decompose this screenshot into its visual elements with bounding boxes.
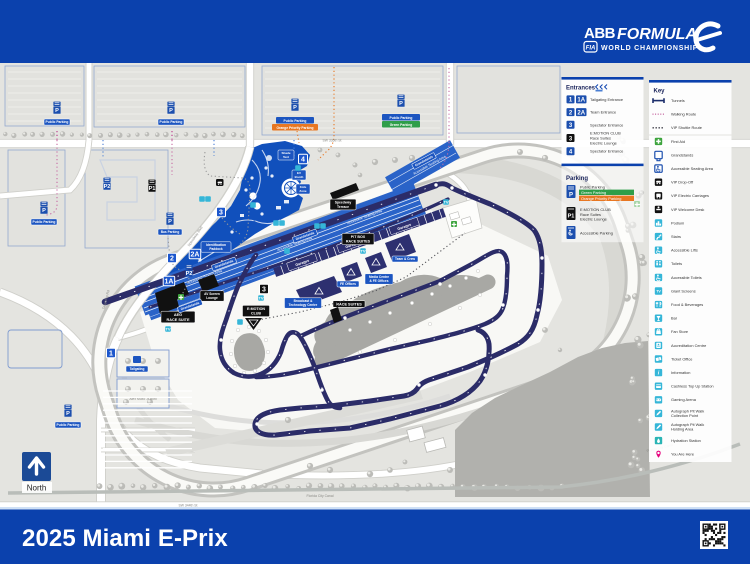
- svg-text:1: 1: [109, 351, 113, 358]
- svg-text:1A: 1A: [577, 98, 585, 104]
- svg-text:Zone: Zone: [299, 189, 306, 193]
- svg-text:P1: P1: [149, 186, 156, 192]
- svg-text:FIA: FIA: [586, 46, 596, 52]
- svg-text:P: P: [293, 105, 297, 111]
- svg-text:P2: P2: [186, 271, 193, 277]
- svg-text:Podium: Podium: [671, 220, 684, 225]
- svg-text:You Are Here: You Are Here: [671, 452, 694, 457]
- svg-text:Media Centre: Media Centre: [369, 275, 389, 279]
- svg-text:Public Parking: Public Parking: [160, 120, 183, 124]
- svg-text:VIP Shuttle Route: VIP Shuttle Route: [671, 125, 702, 130]
- svg-text:SW 336th St: SW 336th St: [322, 139, 341, 143]
- svg-text:WORLD CHAMPIONSHIP: WORLD CHAMPIONSHIP: [601, 45, 698, 52]
- svg-text:2: 2: [170, 256, 174, 263]
- svg-text:Team & Crew: Team & Crew: [395, 257, 415, 261]
- svg-text:P: P: [42, 208, 46, 214]
- svg-text:Broadcast &: Broadcast &: [294, 299, 313, 303]
- svg-text:Parking: Parking: [566, 176, 588, 182]
- svg-text:Lounge: Lounge: [206, 296, 218, 300]
- svg-text:Cashless Top Up Station: Cashless Top Up Station: [671, 384, 714, 389]
- svg-text:Information: Information: [671, 370, 690, 375]
- svg-text:TV: TV: [360, 249, 365, 254]
- svg-text:Green Parking: Green Parking: [390, 123, 413, 127]
- svg-text:ABB: ABB: [584, 25, 616, 42]
- svg-text:E:MOTION: E:MOTION: [247, 307, 265, 311]
- svg-text:Food & Beverages: Food & Beverages: [671, 302, 703, 307]
- svg-text:Public Parking: Public Parking: [580, 184, 605, 189]
- svg-text:RACE SUITES: RACE SUITES: [336, 302, 362, 306]
- svg-text:Accessible Lifts: Accessible Lifts: [671, 248, 698, 253]
- svg-text:FE Offices: FE Offices: [340, 282, 356, 286]
- svg-text:RACE SUITE: RACE SUITE: [167, 318, 190, 322]
- svg-text:Tailgating Entrance: Tailgating Entrance: [590, 97, 623, 102]
- svg-text:Accessible Seating Area: Accessible Seating Area: [671, 166, 714, 171]
- svg-text:AEG: AEG: [174, 313, 182, 317]
- svg-text:Electric Lounge: Electric Lounge: [580, 217, 607, 222]
- svg-text:Identification: Identification: [206, 243, 226, 247]
- svg-text:& FE Offices: & FE Offices: [370, 279, 389, 283]
- svg-text:Walking Route: Walking Route: [671, 112, 696, 117]
- svg-text:Paddock: Paddock: [209, 247, 223, 251]
- svg-text:P1: P1: [568, 214, 575, 220]
- svg-text:PIT BOX: PIT BOX: [351, 235, 366, 239]
- svg-text:Gaming Arena: Gaming Arena: [671, 397, 697, 402]
- svg-text:Collection Point: Collection Point: [671, 413, 699, 418]
- svg-text:Stairs: Stairs: [671, 234, 681, 239]
- svg-text:2025 Miami E-Prix: 2025 Miami E-Prix: [22, 525, 228, 552]
- svg-text:P: P: [569, 193, 573, 199]
- svg-text:Technology Centre: Technology Centre: [289, 303, 318, 307]
- svg-text:Tunnels: Tunnels: [671, 98, 685, 103]
- svg-text:Accreditation Centre: Accreditation Centre: [671, 343, 706, 348]
- svg-text:TV: TV: [258, 296, 263, 301]
- svg-text:VIP Electric Carriages: VIP Electric Carriages: [671, 193, 709, 198]
- svg-text:Grandstands: Grandstands: [671, 152, 693, 157]
- svg-text:VIP Welcome Desk: VIP Welcome Desk: [671, 207, 704, 212]
- svg-text:Public Parking: Public Parking: [33, 220, 56, 224]
- svg-text:Public Parking: Public Parking: [57, 423, 80, 427]
- svg-text:TV: TV: [656, 289, 661, 293]
- svg-text:Spectator Entrance: Spectator Entrance: [590, 149, 623, 154]
- svg-text:VIP Drop-Off: VIP Drop-Off: [671, 180, 694, 185]
- svg-text:Team Entrance: Team Entrance: [590, 110, 616, 115]
- svg-text:Tent: Tent: [283, 155, 289, 159]
- svg-text:Spectator Entrance: Spectator Entrance: [590, 122, 623, 127]
- svg-text:Giant Screens: Giant Screens: [671, 288, 696, 293]
- svg-text:P: P: [55, 108, 59, 114]
- svg-text:Public Parking: Public Parking: [284, 119, 307, 123]
- svg-text:3: 3: [219, 210, 223, 217]
- svg-text:Electric Lounge: Electric Lounge: [590, 140, 617, 145]
- svg-text:TV: TV: [443, 200, 448, 205]
- svg-text:Speedway: Speedway: [335, 200, 352, 204]
- svg-text:Public Parking: Public Parking: [390, 116, 413, 120]
- svg-text:Accessible Toilets: Accessible Toilets: [671, 275, 702, 280]
- svg-text:P: P: [66, 411, 70, 417]
- svg-text:2A: 2A: [191, 252, 200, 259]
- svg-text:P2: P2: [104, 184, 111, 190]
- svg-text:FORMULA: FORMULA: [617, 26, 697, 43]
- svg-text:Ticket Office: Ticket Office: [671, 356, 692, 361]
- svg-text:TV: TV: [165, 327, 170, 332]
- svg-text:3: 3: [262, 287, 266, 294]
- svg-text:Key: Key: [654, 89, 666, 95]
- svg-text:P: P: [168, 219, 172, 225]
- svg-text:AV Screen: AV Screen: [204, 292, 220, 296]
- svg-text:CLUB: CLUB: [251, 312, 261, 316]
- svg-text:SW 344th St: SW 344th St: [178, 504, 197, 508]
- svg-text:Orange Priority Parking: Orange Priority Parking: [276, 126, 313, 130]
- svg-text:Entrances: Entrances: [566, 86, 596, 92]
- svg-text:RACE SUITES: RACE SUITES: [346, 240, 371, 244]
- svg-text:Bar: Bar: [671, 316, 678, 321]
- svg-text:Booth: Booth: [295, 175, 304, 179]
- svg-text:2A: 2A: [577, 110, 585, 116]
- svg-text:Terrace: Terrace: [337, 205, 349, 209]
- svg-text:P: P: [169, 108, 173, 114]
- svg-text:Public Parking: Public Parking: [46, 120, 69, 124]
- svg-text:Fan Store: Fan Store: [671, 329, 688, 334]
- svg-text:Bus Parking: Bus Parking: [161, 230, 180, 234]
- svg-text:Florida City Canal: Florida City Canal: [307, 494, 334, 498]
- svg-text:Tailgating: Tailgating: [130, 367, 145, 371]
- svg-text:Hydration Station: Hydration Station: [671, 438, 701, 443]
- svg-text:North: North: [27, 484, 47, 493]
- svg-text:Green Parking: Green Parking: [581, 190, 606, 195]
- svg-text:1A: 1A: [165, 279, 174, 286]
- svg-text:P: P: [399, 101, 403, 107]
- svg-text:Toilets: Toilets: [671, 261, 682, 266]
- svg-text:Accessible Parking: Accessible Parking: [580, 231, 613, 236]
- svg-text:Holding Area: Holding Area: [671, 427, 694, 432]
- svg-text:4: 4: [301, 157, 305, 164]
- svg-text:First Aid: First Aid: [671, 139, 685, 144]
- svg-text:Orange Priority Parking: Orange Priority Parking: [581, 196, 621, 201]
